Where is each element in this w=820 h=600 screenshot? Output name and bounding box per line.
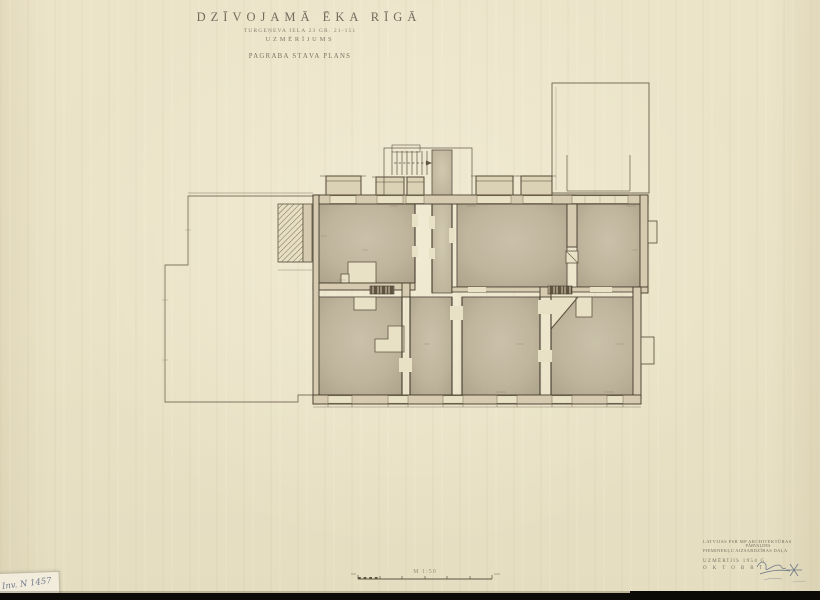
scale-label: M 1:50 bbox=[413, 569, 437, 575]
floor-plan-drawing: M 1:50 bbox=[0, 0, 820, 600]
scanned-drawing-sheet: M 1:50 DZĪVOJAMĀ ĒKA RĪGĀ TU bbox=[0, 0, 820, 600]
stamp-month: O K T O B R Ī bbox=[703, 566, 813, 571]
document-survey-type: UZMĒRĪJUMS bbox=[150, 36, 450, 43]
stamp-measured: UZMĒRĪJIS 1954 G. bbox=[703, 559, 813, 564]
courtyard-outline bbox=[552, 83, 649, 193]
inventory-number: Inv. N 1457 bbox=[2, 576, 53, 592]
institution-stamp: LATVIJAS PSR MP ARCHITEKTŪRAS PĀRVALDES … bbox=[703, 539, 813, 571]
hatched-stair bbox=[278, 204, 312, 270]
scale-bar: M 1:50 bbox=[351, 569, 500, 579]
document-address: TURGEŅEVA IELA 23 GR. 21-151 bbox=[150, 28, 450, 34]
plan-title: PAGRABA STĀVA PLĀNS bbox=[150, 53, 450, 60]
title-block: DZĪVOJAMĀ ĒKA RĪGĀ TURGEŅEVA IELA 23 GR.… bbox=[150, 10, 450, 60]
document-title: DZĪVOJAMĀ ĒKA RĪGĀ bbox=[159, 10, 459, 25]
stamp-org-line3: PIEMINEKĻU AIZSARDZĪBAS DAĻA bbox=[703, 548, 813, 553]
scan-black-edge-right bbox=[630, 591, 820, 600]
